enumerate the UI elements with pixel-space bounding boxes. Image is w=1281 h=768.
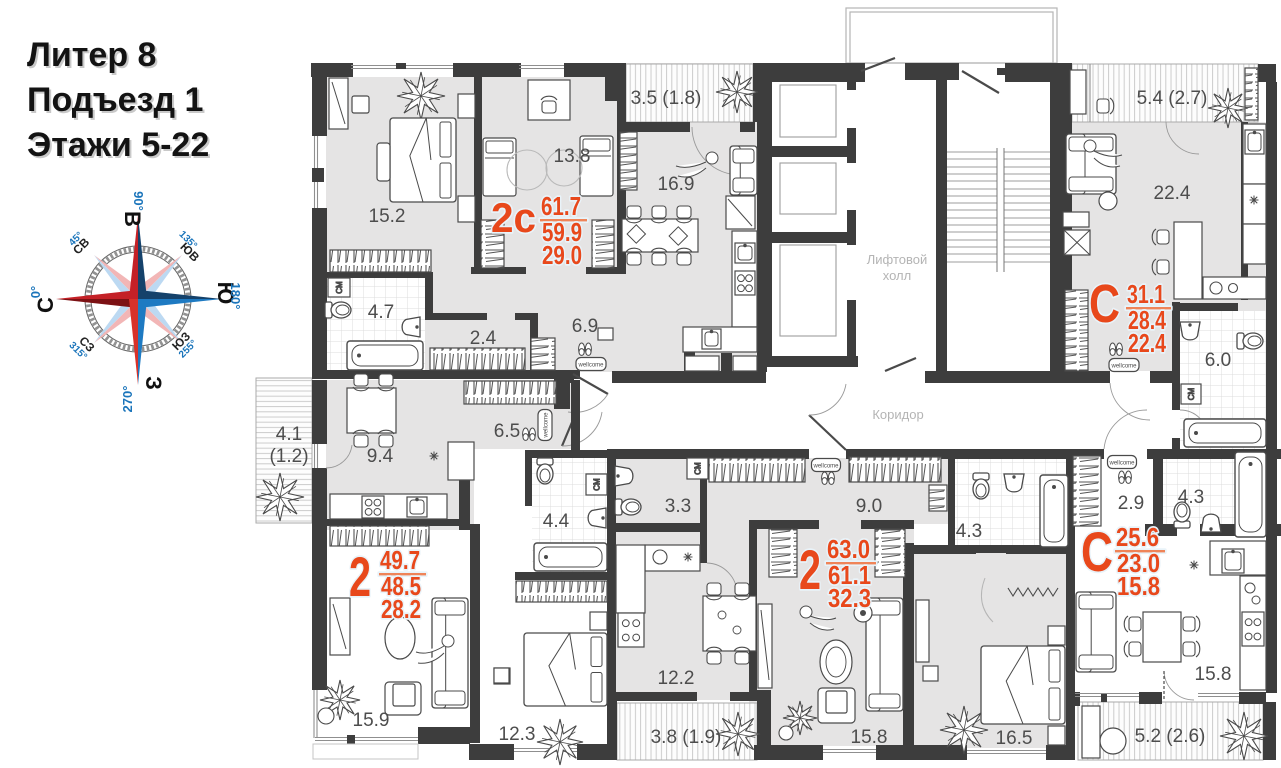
svg-text:5.4 (2.7): 5.4 (2.7) [1137,88,1208,109]
svg-text:5.2 (2.6): 5.2 (2.6) [1135,726,1206,747]
svg-text:СМ: СМ [335,281,344,294]
svg-text:4.3: 4.3 [956,521,982,542]
svg-text:wellcome: wellcome [577,363,604,369]
svg-text:32.3: 32.3 [828,583,871,613]
svg-text:Подъезд 1: Подъезд 1 [27,81,203,119]
svg-text:6.0: 6.0 [1205,350,1231,371]
svg-text:180°: 180° [228,283,243,310]
svg-text:2: 2 [349,545,371,608]
svg-text:6.5: 6.5 [494,421,520,442]
svg-text:28.2: 28.2 [381,594,421,624]
svg-text:15.2: 15.2 [369,206,406,227]
svg-text:СМ: СМ [1187,387,1196,400]
svg-text:2.9: 2.9 [1118,493,1144,514]
svg-text:13.8: 13.8 [554,146,591,167]
svg-text:СМ: СМ [593,478,602,491]
svg-text:4.3: 4.3 [1178,487,1204,508]
svg-text:wellcome: wellcome [1108,461,1135,467]
svg-text:16.9: 16.9 [658,174,695,195]
svg-text:12.2: 12.2 [658,668,695,689]
svg-text:С: С [1081,520,1113,583]
svg-text:4.4: 4.4 [543,511,570,532]
svg-text:2: 2 [799,538,821,601]
svg-text:3.3: 3.3 [665,496,691,517]
svg-text:15.8: 15.8 [1117,571,1160,601]
svg-text:wellcome: wellcome [544,412,550,439]
svg-text:В: В [120,211,145,227]
svg-text:22.4: 22.4 [1128,328,1166,358]
svg-text:4.7: 4.7 [368,302,394,323]
svg-text:3.8 (1.9): 3.8 (1.9) [651,727,722,748]
svg-text:СМ: СМ [694,462,703,475]
svg-text:Лифтовой: Лифтовой [867,252,928,267]
svg-text:Этажи 5-22: Этажи 5-22 [27,126,209,164]
svg-text:6.9: 6.9 [572,316,598,337]
svg-text:29.0: 29.0 [542,240,582,270]
svg-text:Коридор: Коридор [872,407,923,422]
svg-text:С: С [33,297,58,313]
svg-text:wellcome: wellcome [812,464,839,470]
svg-text:Литер 8: Литер 8 [27,36,156,74]
svg-text:wellcome: wellcome [1110,364,1137,370]
svg-text:15.8: 15.8 [1195,664,1232,685]
svg-text:15.9: 15.9 [353,710,390,731]
svg-text:9.0: 9.0 [856,496,882,517]
svg-text:З: З [141,376,166,390]
svg-text:12.3: 12.3 [499,724,536,745]
svg-text:холл: холл [883,268,911,283]
svg-text:2с: 2с [491,194,536,241]
svg-text:90°: 90° [131,191,146,211]
svg-text:4.1: 4.1 [276,424,302,445]
svg-text:3.5 (1.8): 3.5 (1.8) [631,88,702,109]
svg-text:С: С [1089,274,1120,334]
svg-text:22.4: 22.4 [1154,183,1191,204]
svg-text:15.8: 15.8 [851,727,888,748]
svg-text:(1.2): (1.2) [269,446,308,467]
svg-text:270°: 270° [120,386,135,413]
svg-text:2.4: 2.4 [470,328,497,349]
svg-text:0°: 0° [28,286,43,298]
svg-text:16.5: 16.5 [996,728,1033,749]
svg-text:9.4: 9.4 [367,446,394,467]
